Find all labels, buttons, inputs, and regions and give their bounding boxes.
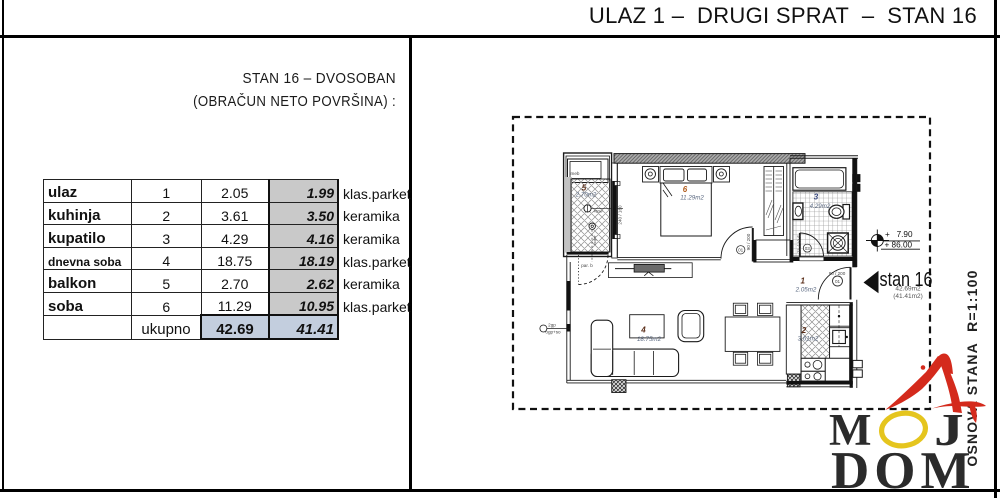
svg-text:2.05m2: 2.05m2: [795, 287, 817, 294]
svg-text:240 / 160: 240 / 160: [618, 205, 623, 225]
svg-text:2.70m2: 2.70m2: [575, 192, 597, 199]
svg-text:(41.41m2): (41.41m2): [893, 293, 923, 300]
svg-text:meb: meb: [571, 171, 580, 176]
svg-text:bojler: bojler: [593, 235, 597, 245]
svg-text:1: 1: [800, 277, 805, 286]
svg-text:par. b: par. b: [581, 263, 593, 268]
svg-text:DOM: DOM: [831, 442, 976, 498]
svg-text:3.61m2: 3.61m2: [798, 336, 819, 343]
svg-text:01: 01: [738, 248, 744, 253]
svg-text:2: 2: [801, 326, 807, 335]
svg-text:90 / 200: 90 / 200: [746, 233, 751, 250]
svg-text:4.29m2: 4.29m2: [810, 203, 831, 210]
svg-text:03: 03: [805, 246, 811, 251]
svg-text:18.75m2: 18.75m2: [637, 336, 662, 343]
svg-text:71 / 19.5: 71 / 19.5: [797, 235, 802, 253]
svg-text:+ 7.90: + 7.90: [885, 230, 913, 239]
svg-text:42.69m2: 42.69m2: [895, 285, 921, 292]
svg-text:OSNOVA STANA R=1:100: OSNOVA STANA R=1:100: [964, 269, 980, 466]
svg-text:2gp: 2gp: [548, 323, 556, 328]
svg-text:11.29m2: 11.29m2: [680, 195, 704, 202]
svg-text:90 / 200: 90 / 200: [829, 271, 846, 276]
svg-text:6: 6: [683, 185, 688, 194]
svg-text:01: 01: [835, 279, 841, 284]
svg-text:4: 4: [640, 326, 646, 335]
svg-text:+ 86.00: + 86.00: [885, 241, 913, 250]
svg-text:ogp+so: ogp+so: [545, 330, 561, 335]
svg-text:450w: 450w: [593, 210, 602, 214]
svg-text:3: 3: [814, 193, 819, 202]
